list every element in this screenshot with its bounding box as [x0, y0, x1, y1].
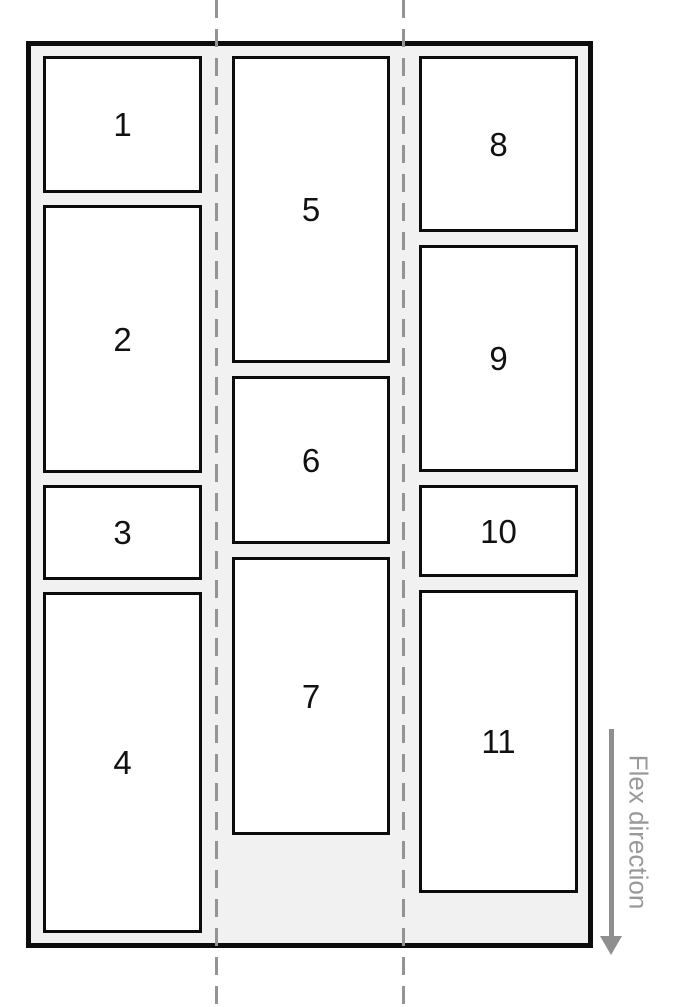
flex-container: 1 2 3 4 5 6 7 8 [26, 41, 593, 948]
flex-item-8-label: 8 [489, 128, 507, 161]
flex-item-5-label: 5 [302, 193, 320, 226]
flex-item-6: 6 [232, 376, 390, 544]
flex-direction-label: Flex direction [623, 755, 654, 910]
flex-direction-arrow-line [609, 729, 614, 937]
flex-item-2: 2 [43, 205, 202, 473]
flex-item-7-label: 7 [302, 680, 320, 713]
flex-item-11: 11 [419, 590, 578, 893]
flexbox-column-wrap-diagram: 1 2 3 4 5 6 7 8 [0, 0, 674, 1007]
flex-column-3: 8 9 10 11 [419, 56, 578, 893]
flex-item-7: 7 [232, 557, 390, 835]
flex-item-4-label: 4 [113, 746, 131, 779]
flex-item-10: 10 [419, 485, 578, 577]
flex-item-6-label: 6 [302, 444, 320, 477]
flex-item-1: 1 [43, 56, 202, 193]
flex-item-4: 4 [43, 592, 202, 933]
arrow-down-icon [600, 936, 622, 955]
flex-item-9-label: 9 [489, 342, 507, 375]
wrap-guide-line-1 [215, 0, 218, 1007]
flex-item-5: 5 [232, 56, 390, 363]
flex-column-1: 1 2 3 4 [43, 56, 202, 933]
flex-item-3-label: 3 [113, 516, 131, 549]
flex-item-8: 8 [419, 56, 578, 232]
flex-item-9: 9 [419, 245, 578, 472]
flex-column-2: 5 6 7 [232, 56, 390, 835]
flex-item-1-label: 1 [113, 108, 131, 141]
flex-item-3: 3 [43, 485, 202, 580]
flex-item-11-label: 11 [481, 725, 515, 758]
flex-item-10-label: 10 [480, 515, 517, 548]
flex-item-2-label: 2 [113, 323, 131, 356]
wrap-guide-line-2 [402, 0, 405, 1007]
